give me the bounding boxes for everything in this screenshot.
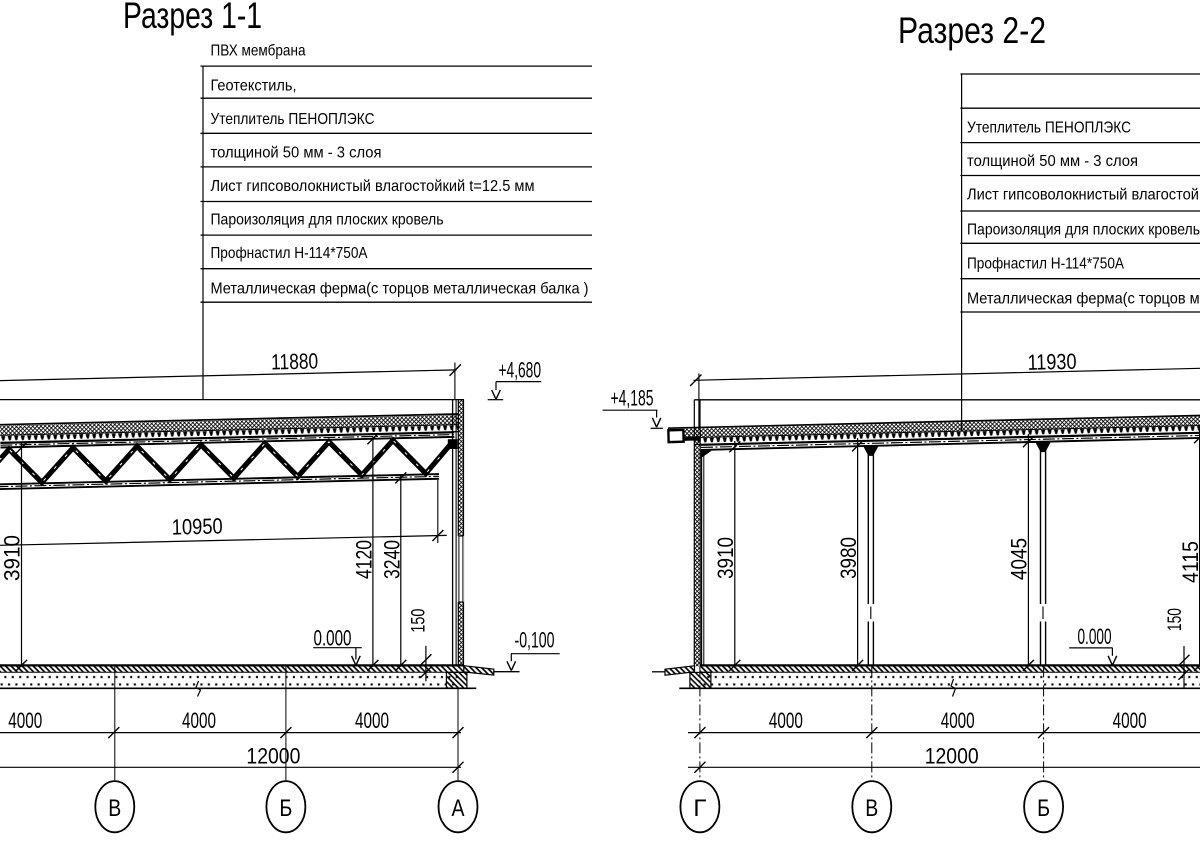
svg-text:Пароизоляция для плоских крове: Пароизоляция для плоских кровель (211, 212, 444, 229)
svg-text:Г: Г (693, 795, 706, 822)
svg-text:150: 150 (1165, 608, 1186, 631)
svg-text:Профнастил Н-114*750А: Профнастил Н-114*750А (211, 245, 368, 262)
svg-text:+4,185: +4,185 (611, 385, 654, 410)
svg-text:Лист гипсоволокнистый влагосто: Лист гипсоволокнистый влагостойкий t=12.… (211, 178, 535, 195)
svg-text:Б: Б (279, 795, 292, 822)
svg-text:11880: 11880 (271, 348, 319, 374)
svg-text:В: В (108, 795, 121, 822)
svg-text:-0,100: -0,100 (515, 628, 555, 653)
svg-text:ПВХ мембрана: ПВХ мембрана (211, 43, 306, 60)
svg-text:10950: 10950 (171, 513, 223, 539)
svg-text:0.000: 0.000 (1078, 624, 1112, 649)
svg-text:Профнастил Н-114*750А: Профнастил Н-114*750А (967, 256, 1124, 273)
svg-text:3980: 3980 (836, 537, 861, 579)
svg-text:Металлическая ферма(с торцов м: Металлическая ферма(с торцов металлическ… (967, 291, 1200, 308)
svg-text:Разрез 1-1: Разрез 1-1 (123, 0, 262, 36)
svg-text:4120: 4120 (352, 540, 377, 579)
svg-text:4045: 4045 (1007, 538, 1032, 580)
svg-text:Разрез 2-2: Разрез 2-2 (898, 10, 1046, 51)
svg-text:12000: 12000 (925, 743, 979, 768)
svg-text:толщиной 50 мм - 3 слоя: толщиной 50 мм - 3 слоя (967, 153, 1138, 170)
svg-text:Геотекстиль,: Геотекстиль, (211, 78, 297, 95)
svg-text:толщиной 50 мм - 3 слоя: толщиной 50 мм - 3 слоя (211, 145, 382, 162)
svg-text:11930: 11930 (1027, 349, 1077, 375)
svg-text:4115: 4115 (1178, 541, 1200, 583)
svg-text:12000: 12000 (246, 743, 300, 768)
svg-text:3910: 3910 (0, 535, 25, 581)
svg-text:4000: 4000 (941, 708, 975, 733)
svg-text:Б: Б (1037, 795, 1050, 822)
svg-text:А: А (452, 795, 465, 822)
svg-text:4000: 4000 (8, 708, 42, 733)
svg-text:Утеплитель ПЕНОПЛЭКС: Утеплитель ПЕНОПЛЭКС (211, 111, 375, 128)
svg-text:4000: 4000 (769, 708, 803, 733)
svg-text:В: В (865, 795, 878, 822)
svg-text:0.000: 0.000 (314, 625, 352, 650)
svg-text:4000: 4000 (182, 708, 216, 733)
svg-text:Металлическая ферма(с торцов м: Металлическая ферма(с торцов металлическ… (211, 281, 589, 298)
svg-text:3240: 3240 (380, 540, 405, 579)
svg-text:4000: 4000 (1113, 708, 1147, 733)
svg-text:Лист гипсоволокнистый влагосто: Лист гипсоволокнистый влагостойкий t=12.… (967, 187, 1200, 204)
svg-text:Пароизоляция для плоских крове: Пароизоляция для плоских кровель (967, 222, 1200, 239)
svg-text:150: 150 (408, 609, 429, 633)
svg-text:4000: 4000 (355, 708, 389, 733)
svg-text:3910: 3910 (713, 537, 738, 579)
svg-text:+4,680: +4,680 (499, 357, 542, 382)
svg-text:Утеплитель ПЕНОПЛЭКС: Утеплитель ПЕНОПЛЭКС (967, 120, 1131, 137)
